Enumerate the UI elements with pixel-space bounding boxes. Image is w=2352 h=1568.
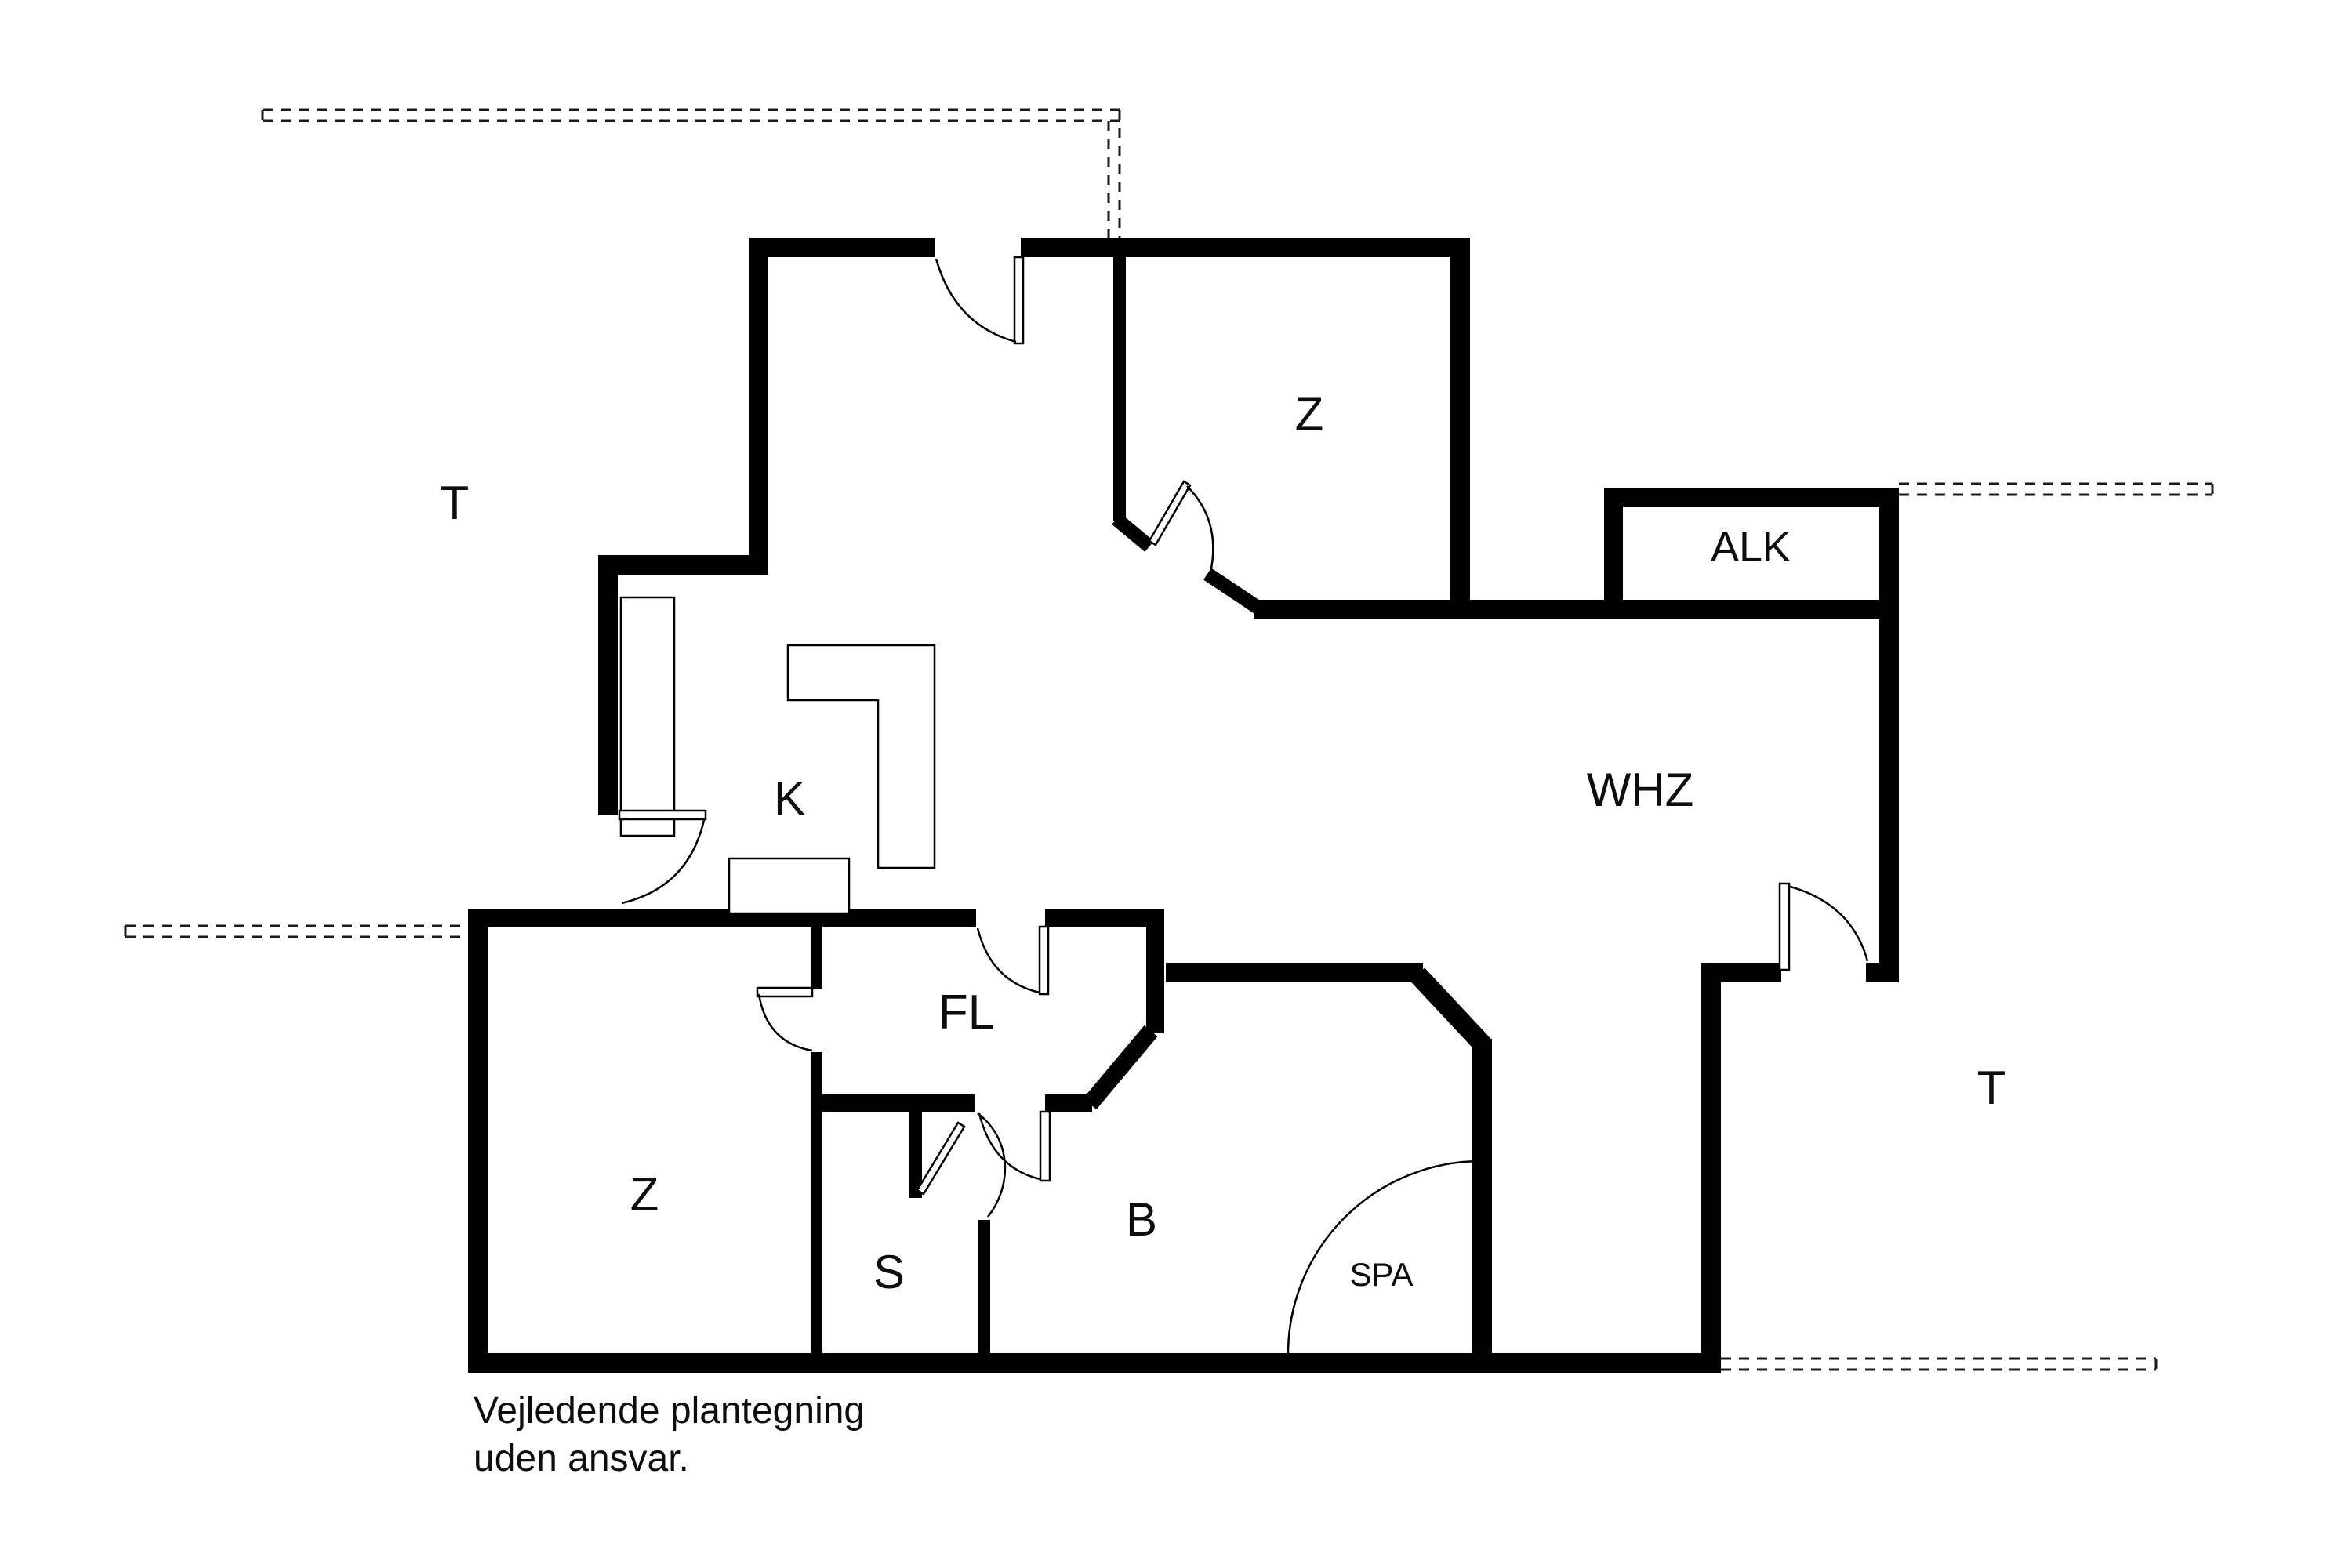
s-door-leaf <box>917 1123 964 1194</box>
lower-left-outer-wall <box>468 909 488 1373</box>
z-alk-bottom-wall-band <box>1254 600 1899 619</box>
label-z-bottom-room: Z <box>630 1168 659 1221</box>
whz-terrace-door-arc <box>1788 886 1867 961</box>
s-door-arc <box>978 1113 1005 1217</box>
z-s-divider-upper <box>811 927 822 989</box>
floor-plan-page: T Z ALK WHZ K FL Z S B SPA T Vejledende … <box>0 0 2352 1568</box>
z-top-chamfer-wall-2 <box>1207 574 1259 608</box>
room-labels: T Z ALK WHZ K FL Z S B SPA T <box>441 388 2006 1298</box>
label-whz-living-room: WHZ <box>1587 764 1694 816</box>
bottom-outer-wall <box>468 1353 1721 1373</box>
whz-right-wall <box>1879 488 1899 982</box>
footer-line-2: uden ansvar. <box>474 1438 689 1479</box>
z-bottom-door-arc <box>759 994 812 1051</box>
label-hall: FL <box>938 985 995 1040</box>
kitchen-door-leaf <box>619 811 706 819</box>
entrance-door-arc <box>936 259 1016 342</box>
terrace-top-left-dashed-boundary <box>263 110 1120 238</box>
b-top-wall <box>1166 963 1423 982</box>
footer-line-1: Vejledende plantegning <box>474 1390 865 1432</box>
label-alk-alcove: ALK <box>1711 524 1791 571</box>
top-wall-right-segment <box>1021 238 1470 257</box>
label-terrace-right: T <box>1977 1062 2006 1114</box>
terrace-right-bottom-dashed-boundary <box>1721 1359 2156 1370</box>
b-chamfer-wall <box>1417 975 1485 1047</box>
terrace-right-top-dashed-boundary <box>1899 484 2212 495</box>
hall-door-leaf <box>1040 927 1048 994</box>
label-terrace-top: T <box>441 477 470 529</box>
label-spa: SPA <box>1350 1256 1414 1293</box>
hall-right-wall <box>1146 909 1164 1033</box>
top-wall-left-segment <box>749 238 935 257</box>
label-kitchen: K <box>774 772 805 825</box>
footer-disclaimer: Vejledende plantegning uden ansvar. <box>474 1390 865 1479</box>
kitchen-cabinet <box>729 858 849 913</box>
middle-wall-band-left <box>468 909 976 927</box>
z-bottom-door-leaf <box>757 988 812 996</box>
z-top-chamfer-wall-1 <box>1116 519 1149 546</box>
s-top-wall <box>816 1094 975 1112</box>
terrace-left-dashed-boundary <box>125 926 468 937</box>
whz-bottom-wall-left-segment <box>1701 963 1781 982</box>
label-bathroom: B <box>1126 1193 1157 1246</box>
b-door-leaf <box>1040 1112 1050 1181</box>
step-horizontal-wall <box>598 555 768 575</box>
kitchen-window <box>621 597 674 836</box>
hall-b-chamfer-wall <box>1090 1031 1151 1104</box>
label-s-room: S <box>873 1246 905 1298</box>
z-top-door-arc <box>1187 486 1213 572</box>
z-top-right-wall <box>1450 238 1470 619</box>
s-right-wall <box>978 1220 990 1353</box>
whz-terrace-door-leaf <box>1780 884 1789 970</box>
k-z-divider-wall <box>1113 238 1126 521</box>
floor-plan-drawing: T Z ALK WHZ K FL Z S B SPA T Vejledende … <box>0 0 2352 1568</box>
kitchen-left-wall <box>598 555 618 815</box>
step-vertical-wall <box>749 238 768 575</box>
z-top-door-leaf <box>1149 481 1190 545</box>
b-right-wall <box>1472 1039 1492 1373</box>
kitchen-counter <box>788 645 935 868</box>
label-z-top-room: Z <box>1295 388 1324 441</box>
doors <box>619 257 1867 1217</box>
hall-door-arc <box>978 928 1040 993</box>
alk-top-wall <box>1604 488 1899 507</box>
middle-wall-band-right <box>1045 909 1146 927</box>
alk-left-wall <box>1604 488 1623 600</box>
entrance-door-leaf <box>1014 257 1023 343</box>
bay-right-wall <box>1701 963 1721 1373</box>
